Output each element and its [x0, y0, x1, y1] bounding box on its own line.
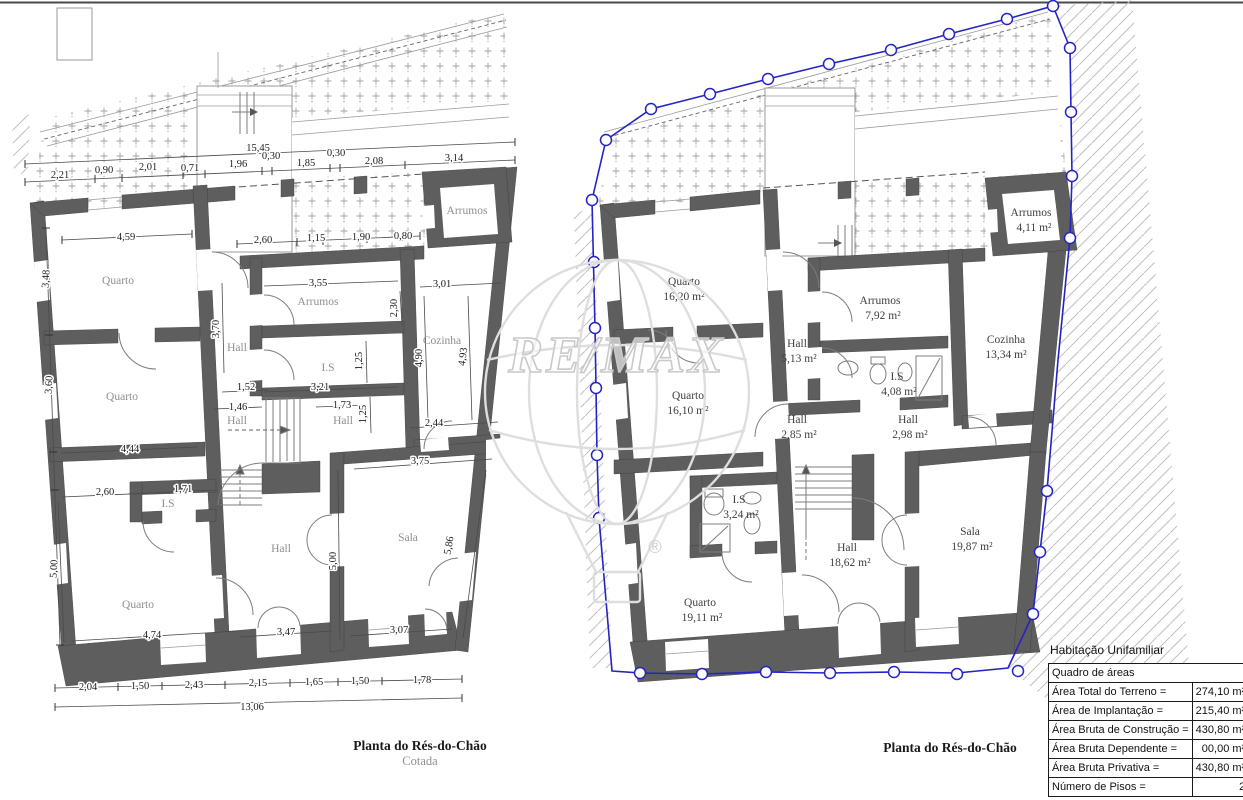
room-label: Hall: [271, 543, 291, 555]
area-value: 430,80 m²: [1192, 721, 1243, 740]
left-plan: 15,45 2,21 0,90 2,01 0,71 1,96 0,30 1,85…: [12, 8, 517, 713]
dim-label: 1,50: [131, 681, 149, 692]
dim-label: 1,50: [351, 676, 369, 687]
dim-label: 0,30: [262, 151, 280, 162]
dim-label: 4,44: [121, 444, 140, 455]
area-value: 274,10 m²: [1192, 683, 1243, 702]
room-area: 18,62 m²: [829, 557, 871, 569]
floorplan-sheet: 15,45 2,21 0,90 2,01 0,71 1,96 0,30 1,85…: [0, 0, 1243, 800]
room-area: 4,08 m²: [881, 386, 917, 398]
areas-table-header: Quadro de áreas: [1049, 664, 1243, 683]
area-label: Número de Pisos =: [1049, 778, 1193, 797]
room-label: Cozinha: [987, 334, 1025, 346]
dim-label: 1,15: [307, 233, 325, 244]
areas-table: Quadro de áreas Área Total do Terreno = …: [1048, 663, 1243, 797]
table-row: Área Bruta Privativa = 430,80 m²: [1049, 759, 1243, 778]
dim-label: 3,21: [311, 382, 329, 393]
room-area: 2,85 m²: [781, 429, 817, 441]
dim-label: 0,30: [327, 148, 345, 159]
dim-label: 5,00: [328, 552, 339, 570]
dim-label: 4,59: [117, 232, 135, 243]
left-plan-subtitle: Cotada: [310, 754, 530, 769]
area-label: Área Bruta Dependente =: [1049, 740, 1193, 759]
room-label: Arrumos: [1011, 207, 1052, 219]
room-label: Hall: [898, 414, 918, 426]
dim-label: 13,06: [240, 702, 264, 713]
room-area: 4,11 m²: [1017, 222, 1053, 234]
watermark-brand: RE/MAX: [507, 327, 725, 384]
registered-mark-icon: ®: [648, 537, 661, 557]
table-row: Área Total do Terreno = 274,10 m²: [1049, 683, 1243, 702]
area-value: 00,00 m²: [1192, 740, 1243, 759]
room-area: 13,34 m²: [985, 349, 1027, 361]
dim-label: 1,46: [229, 402, 247, 413]
dim-label: 2,21: [51, 170, 69, 181]
dim-label: 1,85: [297, 158, 315, 169]
dim-label: 3,48: [41, 269, 53, 288]
room-label: Hall: [837, 542, 857, 554]
area-label: Área Bruta Privativa =: [1049, 759, 1193, 778]
area-value: 430,80 m²: [1192, 759, 1243, 778]
dim-label: 2,30: [389, 299, 400, 317]
dim-label: 4,74: [143, 630, 162, 641]
room-label: Quarto: [684, 597, 716, 609]
dim-label: 1,25: [354, 352, 365, 370]
room-label: I.S: [161, 498, 174, 510]
dim-label: 3,70: [211, 320, 222, 338]
dim-label: 2,43: [185, 680, 203, 691]
area-value: 215,40 m²: [1192, 702, 1243, 721]
area-label: Área de Implantação =: [1049, 702, 1193, 721]
room-label: Quarto: [122, 599, 154, 611]
dim-label: 2,01: [139, 162, 157, 173]
dim-label: 3,14: [445, 153, 464, 164]
dim-label: 2,15: [249, 678, 267, 689]
room-label: Hall: [227, 342, 247, 354]
room-label: Arrumos: [860, 295, 901, 307]
dim-label: 0,71: [181, 163, 199, 174]
dim-label: 1,71: [174, 484, 192, 495]
room-label: Hall: [787, 414, 807, 426]
dim-label: 1,90: [352, 232, 370, 243]
table-row: Área Bruta de Construção = 430,80 m²: [1049, 721, 1243, 740]
dim-label: 2,44: [425, 418, 444, 429]
room-area: 2,98 m²: [892, 429, 928, 441]
right-plan-title: Planta do Rés-do-Chão: [840, 740, 1060, 756]
dim-label: 5,00: [49, 559, 61, 578]
dim-label: 2,08: [365, 156, 383, 167]
dim-label: 3,01: [433, 279, 451, 290]
dim-label: 4,93: [457, 347, 470, 367]
area-label: Área Total do Terreno =: [1049, 683, 1193, 702]
room-label: I.S: [732, 494, 745, 506]
left-plan-title: Planta do Rés-do-Chão: [310, 738, 530, 754]
building-type-label: Habitação Unifamiliar: [1050, 643, 1164, 657]
dim-label: 3,75: [411, 456, 429, 467]
room-label: Sala: [960, 526, 980, 538]
room-label: Hall: [227, 415, 247, 427]
room-area: 3,24 m²: [723, 509, 759, 521]
room-area: 5,13 m²: [781, 353, 817, 365]
room-label: Cozinha: [423, 335, 461, 347]
room-label: Hall: [333, 415, 353, 427]
dim-label: 5,86: [443, 536, 457, 556]
room-area: 19,87 m²: [951, 541, 993, 553]
table-row: Área Bruta Dependente = 00,00 m²: [1049, 740, 1243, 759]
dim-label: 3,47: [277, 627, 295, 638]
dim-label: 2,60: [254, 235, 272, 246]
table-row: Número de Pisos = 2: [1049, 778, 1243, 797]
table-row: Área de Implantação = 215,40 m²: [1049, 702, 1243, 721]
dim-label: 0,80: [394, 231, 412, 242]
room-label: Quarto: [102, 275, 134, 287]
room-label: Sala: [398, 532, 418, 544]
room-area: 16,20 m²: [663, 291, 705, 303]
dim-label: 1,73: [333, 400, 351, 411]
area-label: Área Bruta de Construção =: [1049, 721, 1193, 740]
dim-label: 1,96: [229, 159, 247, 170]
room-label: Hall: [787, 338, 807, 350]
dim-label: 3,55: [309, 278, 327, 289]
dim-label: 1,52: [237, 382, 255, 393]
dim-label: 2,04: [79, 682, 98, 693]
room-label: I.S: [321, 362, 334, 374]
dim-label: 1,65: [305, 677, 323, 688]
room-area: 19,11 m²: [682, 612, 723, 624]
dim-label: 0,90: [95, 165, 113, 176]
room-label: I.S: [890, 371, 903, 383]
room-label: Arrumos: [447, 205, 488, 217]
dim-label: 4,90: [414, 349, 425, 367]
room-area: 7,92 m²: [865, 310, 901, 322]
area-value: 2: [1192, 778, 1243, 797]
dim-label: 2,60: [96, 487, 114, 498]
room-label: Arrumos: [298, 296, 339, 308]
dim-label: 1,25: [358, 405, 369, 423]
dim-label: 3,60: [44, 375, 56, 394]
dim-label: 1,78: [413, 675, 431, 686]
room-label: Quarto: [106, 391, 138, 403]
dim-label: 3,07: [390, 625, 408, 636]
room-label: Quarto: [672, 390, 704, 402]
